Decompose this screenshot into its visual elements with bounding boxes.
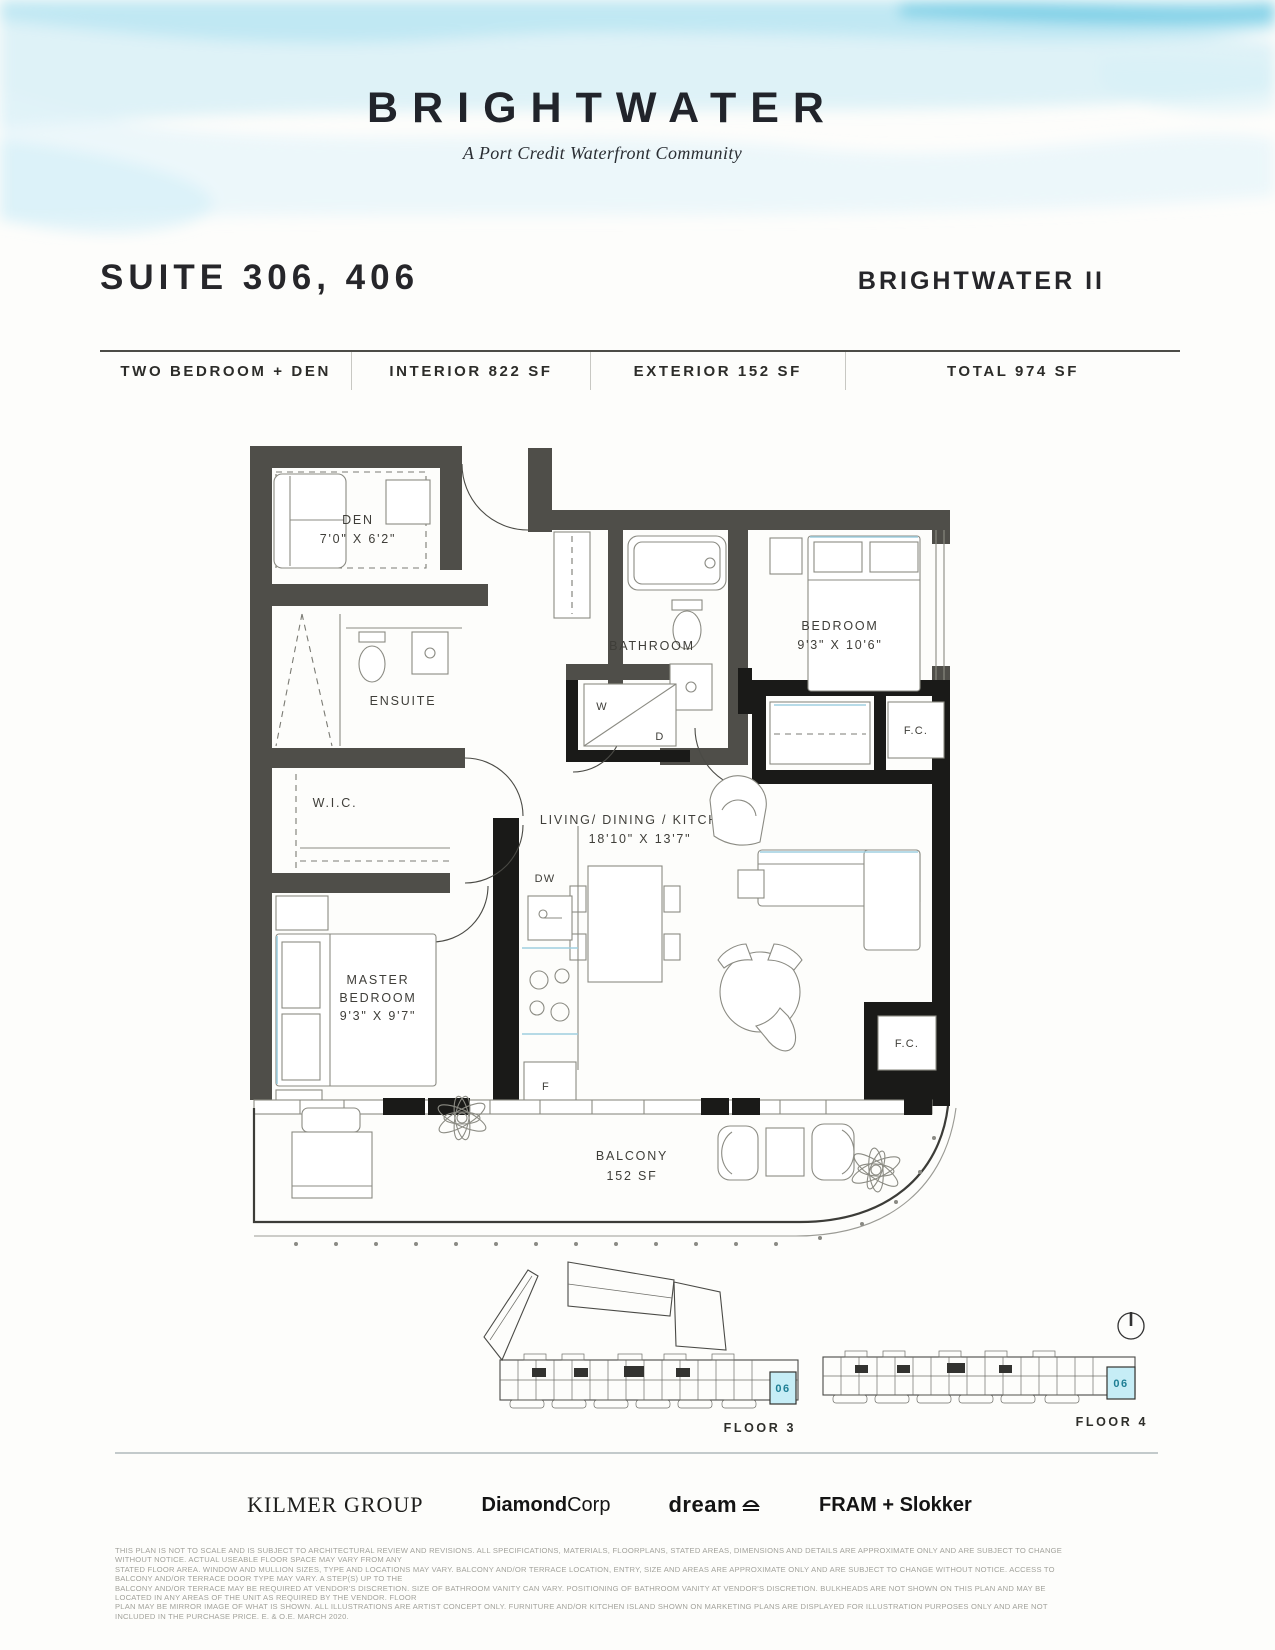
unit-info-bar: TWO BEDROOM + DEN INTERIOR 822 SF EXTERI… (100, 350, 1180, 390)
master-dims: 9'3" X 9'7" (340, 1009, 417, 1023)
interior-area-cell: INTERIOR 822 SF (352, 352, 590, 390)
ensuite-room: ENSUITE (276, 614, 462, 746)
den-label: DEN (342, 513, 374, 527)
kitchen: DW F (522, 826, 578, 1102)
total-area-cell: TOTAL 974 SF (846, 352, 1180, 390)
keyplan-floor3: 06 FLOOR 3 (476, 1242, 816, 1442)
balcony-dims: 152 SF (606, 1169, 657, 1183)
bedroom-label: BEDROOM (801, 619, 878, 633)
bedroom-dims: 9'3" X 10'6" (797, 638, 882, 652)
brand-block: BRIGHTWATER A Port Credit Waterfront Com… (0, 84, 1240, 164)
unit-06-label-floor3: 06 (775, 1383, 790, 1395)
fan-coil-top-label: F.C. (904, 725, 928, 737)
dryer-label: D (655, 731, 664, 743)
unit-06-label-floor4: 06 (1113, 1378, 1128, 1390)
diamondcorp-logo-bold: Diamond (482, 1494, 568, 1516)
dream-logo: dream (668, 1492, 761, 1518)
keyplan-floor4: 06 FLOOR 4 (815, 1295, 1165, 1430)
laundry-closet: W D (584, 684, 676, 746)
diamondcorp-logo: DiamondCorp (482, 1494, 611, 1517)
floor3-label: FLOOR 3 (724, 1421, 796, 1435)
brand-tagline: A Port Credit Waterfront Community (0, 143, 1240, 164)
fram-slokker-logo: FRAM + Slokker (819, 1494, 972, 1517)
master-bedroom-room: MASTER BEDROOM 9'3" X 9'7" (276, 896, 436, 1102)
living-room: LIVING/ DINING / KITCHEN 18'10" X 13'7" (540, 776, 920, 1051)
den-dims: 7'0" X 6'2" (320, 532, 397, 546)
disclaimer-line: STATED FLOOR AREA. WINDOW AND MULLION SI… (115, 1565, 1082, 1584)
wic-room: W.I.C. (296, 774, 450, 868)
exterior-area-cell: EXTERIOR 152 SF (591, 352, 846, 390)
dream-logo-text: dream (668, 1492, 737, 1518)
footer-divider (115, 1452, 1158, 1454)
legal-disclaimer: THIS PLAN IS NOT TO SCALE AND IS SUBJECT… (115, 1546, 1082, 1621)
fan-coil-bottom: F.C. (878, 1016, 936, 1070)
diamondcorp-logo-light: Corp (567, 1494, 610, 1516)
floorplan-drawing: DEN 7'0" X 6'2" BATHROOM BEDROOM 9'3" X … (240, 418, 960, 1263)
brochure-page: BRIGHTWATER A Port Credit Waterfront Com… (0, 0, 1275, 1650)
partner-logos: KILMER GROUP DiamondCorp dream FRAM + Sl… (0, 1492, 1247, 1518)
kilmer-group-logo: KILMER GROUP (247, 1492, 423, 1518)
dishwasher-label: DW (535, 873, 556, 885)
wic-label: W.I.C. (313, 796, 358, 810)
fan-coil-top: F.C. (770, 702, 944, 764)
suite-header: SUITE 306, 406 BRIGHTWATER II (100, 258, 1105, 298)
master-label-1: MASTER (347, 973, 410, 987)
fridge-label: F (542, 1081, 550, 1093)
floor4-label: FLOOR 4 (1076, 1415, 1148, 1429)
den-room: DEN 7'0" X 6'2" (274, 472, 430, 568)
project-name: BRIGHTWATER II (858, 267, 1105, 296)
balcony: BALCONY 152 SF (254, 1095, 956, 1246)
disclaimer-line: THIS PLAN IS NOT TO SCALE AND IS SUBJECT… (115, 1546, 1082, 1565)
disclaimer-line: PLAN MAY BE MIRROR IMAGE OF WHAT IS SHOW… (115, 1602, 1082, 1621)
washer-label: W (596, 701, 608, 713)
brand-name: BRIGHTWATER (0, 84, 1240, 133)
bedroom-room: BEDROOM 9'3" X 10'6" (770, 536, 920, 691)
disclaimer-line: BALCONY AND/OR TERRACE MAY BE REQUIRED A… (115, 1584, 1082, 1603)
bathroom-label: BATHROOM (609, 639, 695, 653)
balcony-label: BALCONY (596, 1149, 668, 1163)
ensuite-label: ENSUITE (370, 694, 437, 708)
page-title: SUITE 306, 406 (100, 258, 419, 298)
living-label: LIVING/ DINING / KITCHEN (540, 813, 740, 827)
unit-type-cell: TWO BEDROOM + DEN (100, 352, 352, 390)
fan-coil-bottom-label: F.C. (895, 1038, 919, 1050)
north-compass-icon (1118, 1312, 1144, 1339)
plant-icon (849, 1147, 903, 1192)
living-dims: 18'10" X 13'7" (589, 832, 692, 846)
master-label-2: BEDROOM (339, 991, 416, 1005)
dream-arch-icon (741, 1496, 761, 1514)
